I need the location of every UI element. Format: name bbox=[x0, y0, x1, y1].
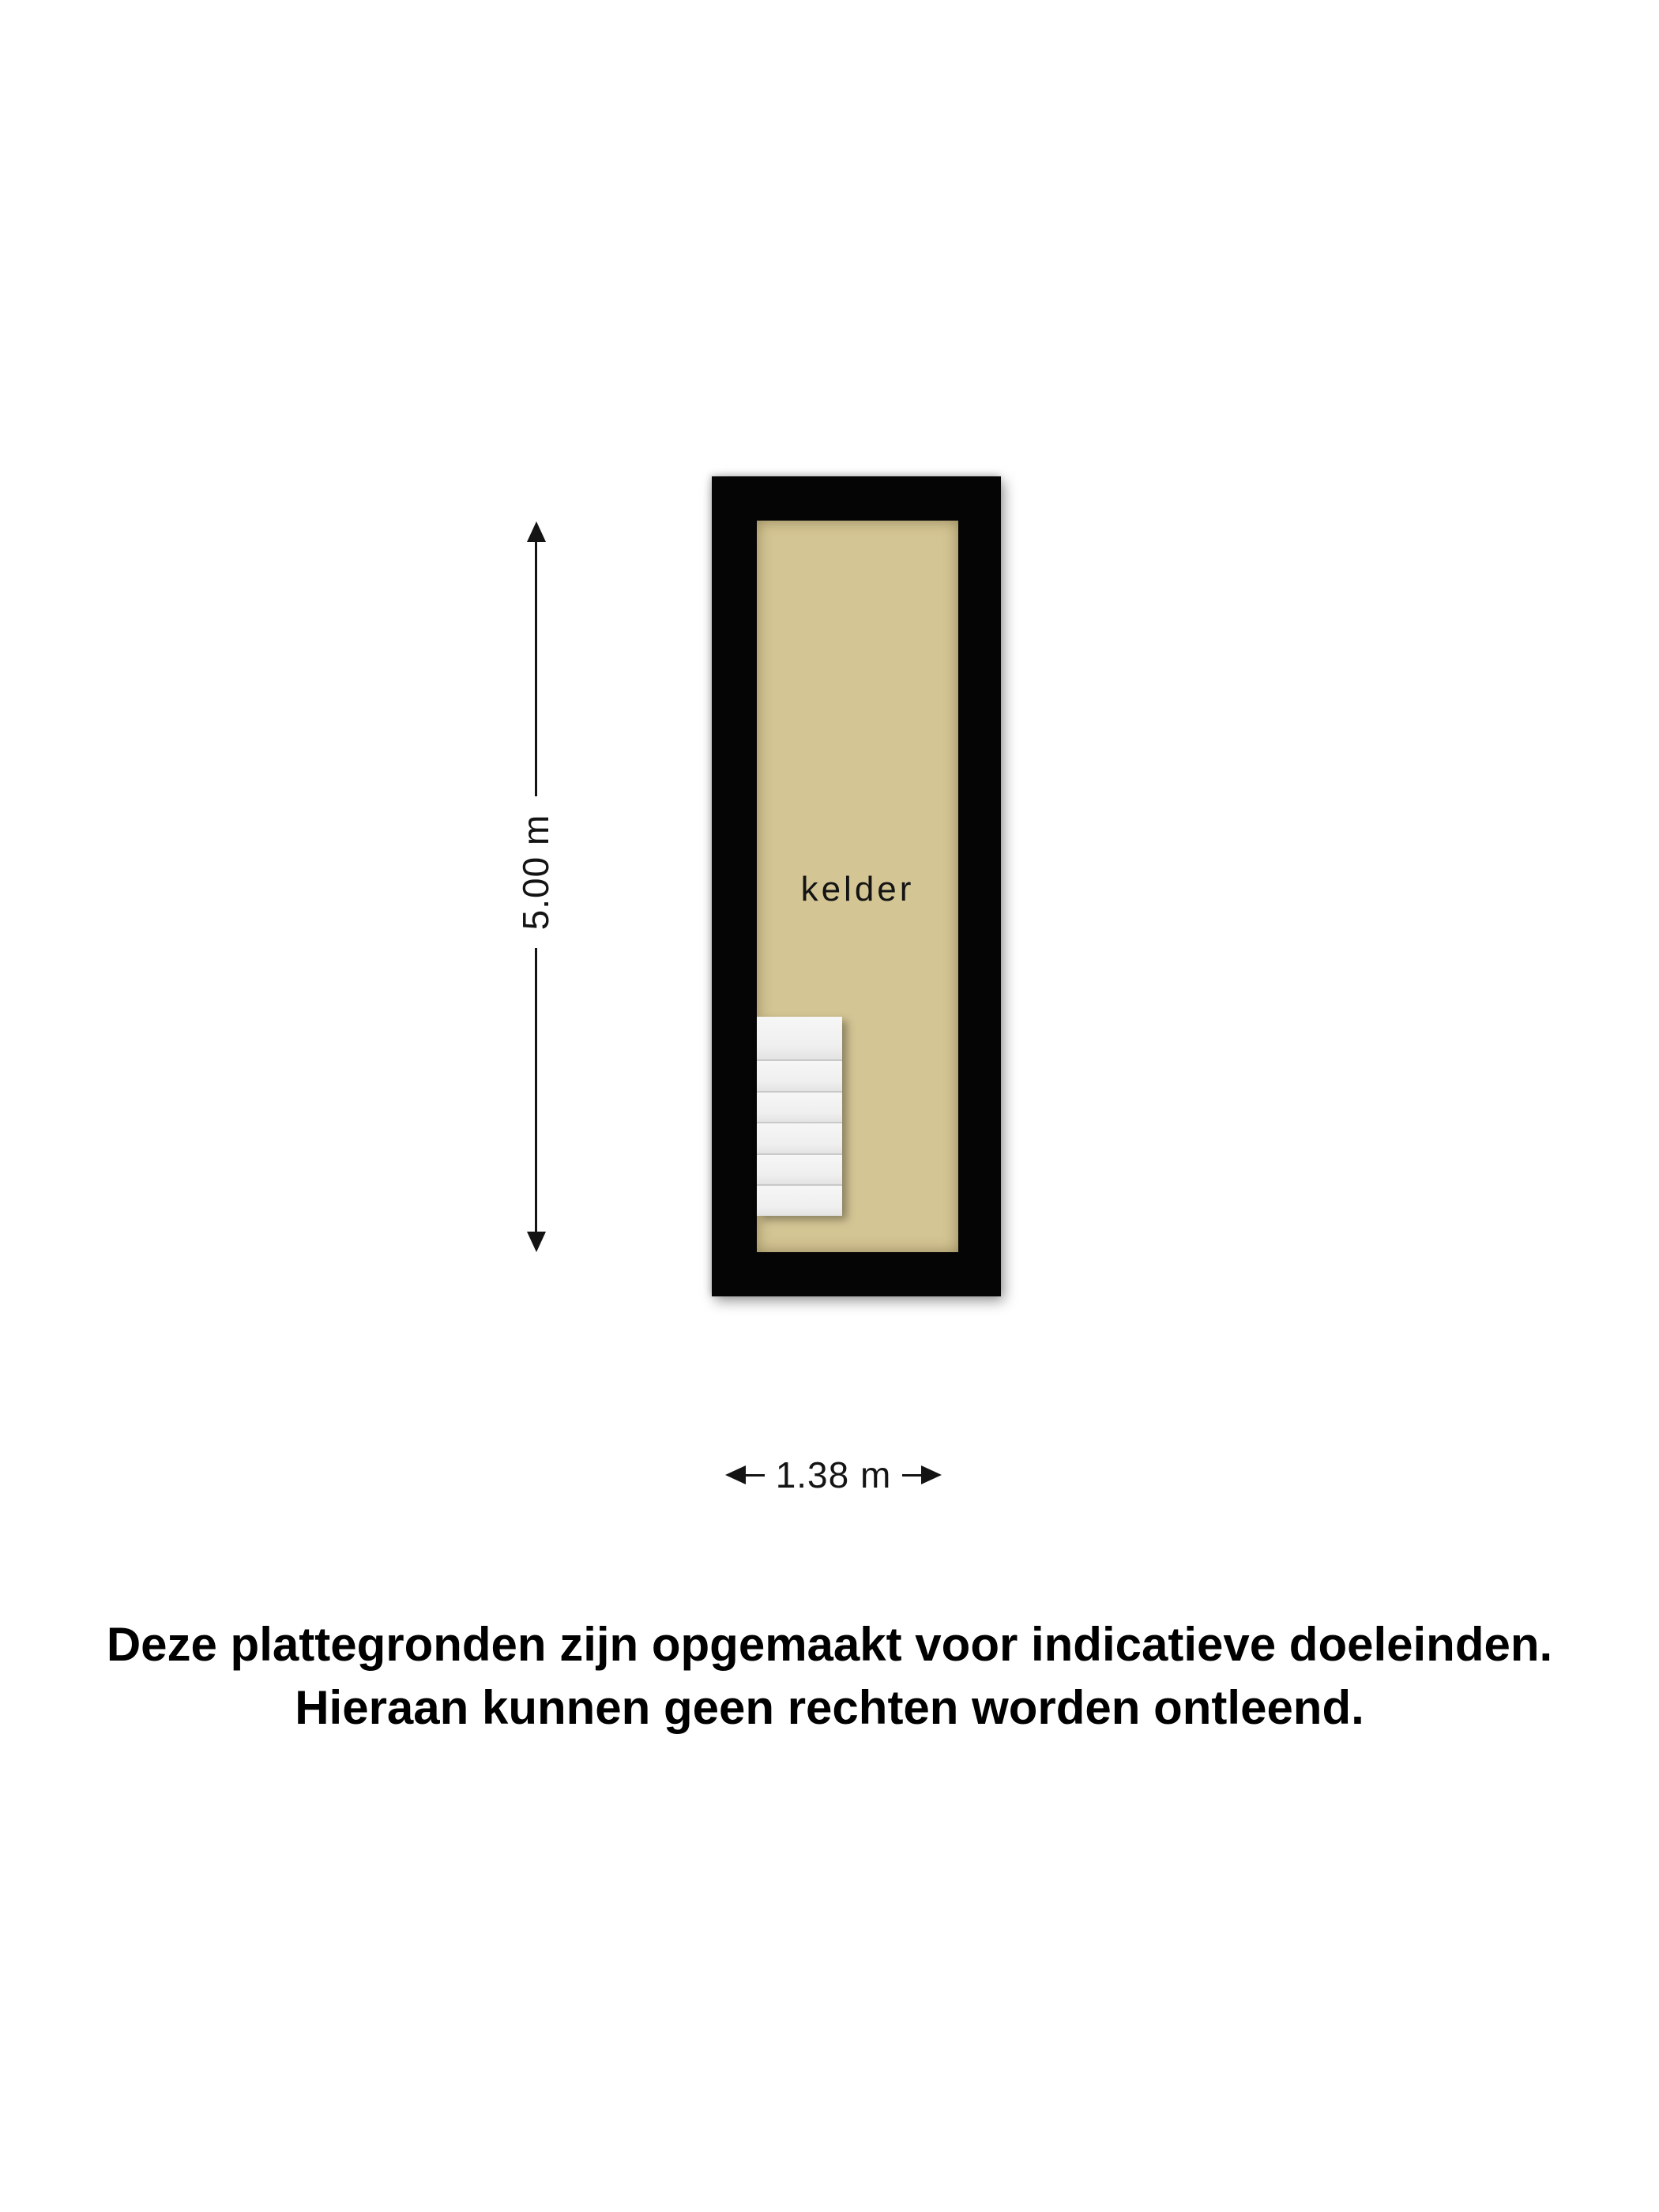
width-dimension-label: 1.38 m bbox=[776, 1454, 892, 1496]
width-dimension: 1.38 m bbox=[741, 1454, 926, 1495]
floorplan-walls: kelder bbox=[712, 476, 1001, 1296]
arrow-right-icon bbox=[902, 1465, 942, 1484]
stair-step bbox=[757, 1059, 842, 1091]
stair-step bbox=[757, 1122, 842, 1153]
stairs bbox=[757, 1017, 842, 1216]
dimension-line-top bbox=[535, 537, 537, 796]
disclaimer: Deze plattegronden zijn opgemaakt voor i… bbox=[0, 1613, 1659, 1740]
disclaimer-line-2: Hieraan kunnen geen rechten worden ontle… bbox=[0, 1676, 1659, 1740]
room-kelder: kelder bbox=[757, 521, 958, 1252]
stair-step bbox=[757, 1017, 842, 1059]
stair-step bbox=[757, 1091, 842, 1123]
arrow-left-icon bbox=[725, 1465, 765, 1484]
dimension-line-bottom bbox=[535, 948, 537, 1235]
room-label: kelder bbox=[801, 870, 915, 909]
stair-step bbox=[757, 1184, 842, 1216]
arrow-down-icon bbox=[527, 1232, 546, 1252]
height-dimension-label: 5.00 m bbox=[514, 814, 557, 931]
stair-step bbox=[757, 1153, 842, 1185]
floorplan-page: kelder 5.00 m 1.38 m Deze plattegronden … bbox=[0, 0, 1659, 2212]
disclaimer-line-1: Deze plattegronden zijn opgemaakt voor i… bbox=[0, 1613, 1659, 1676]
